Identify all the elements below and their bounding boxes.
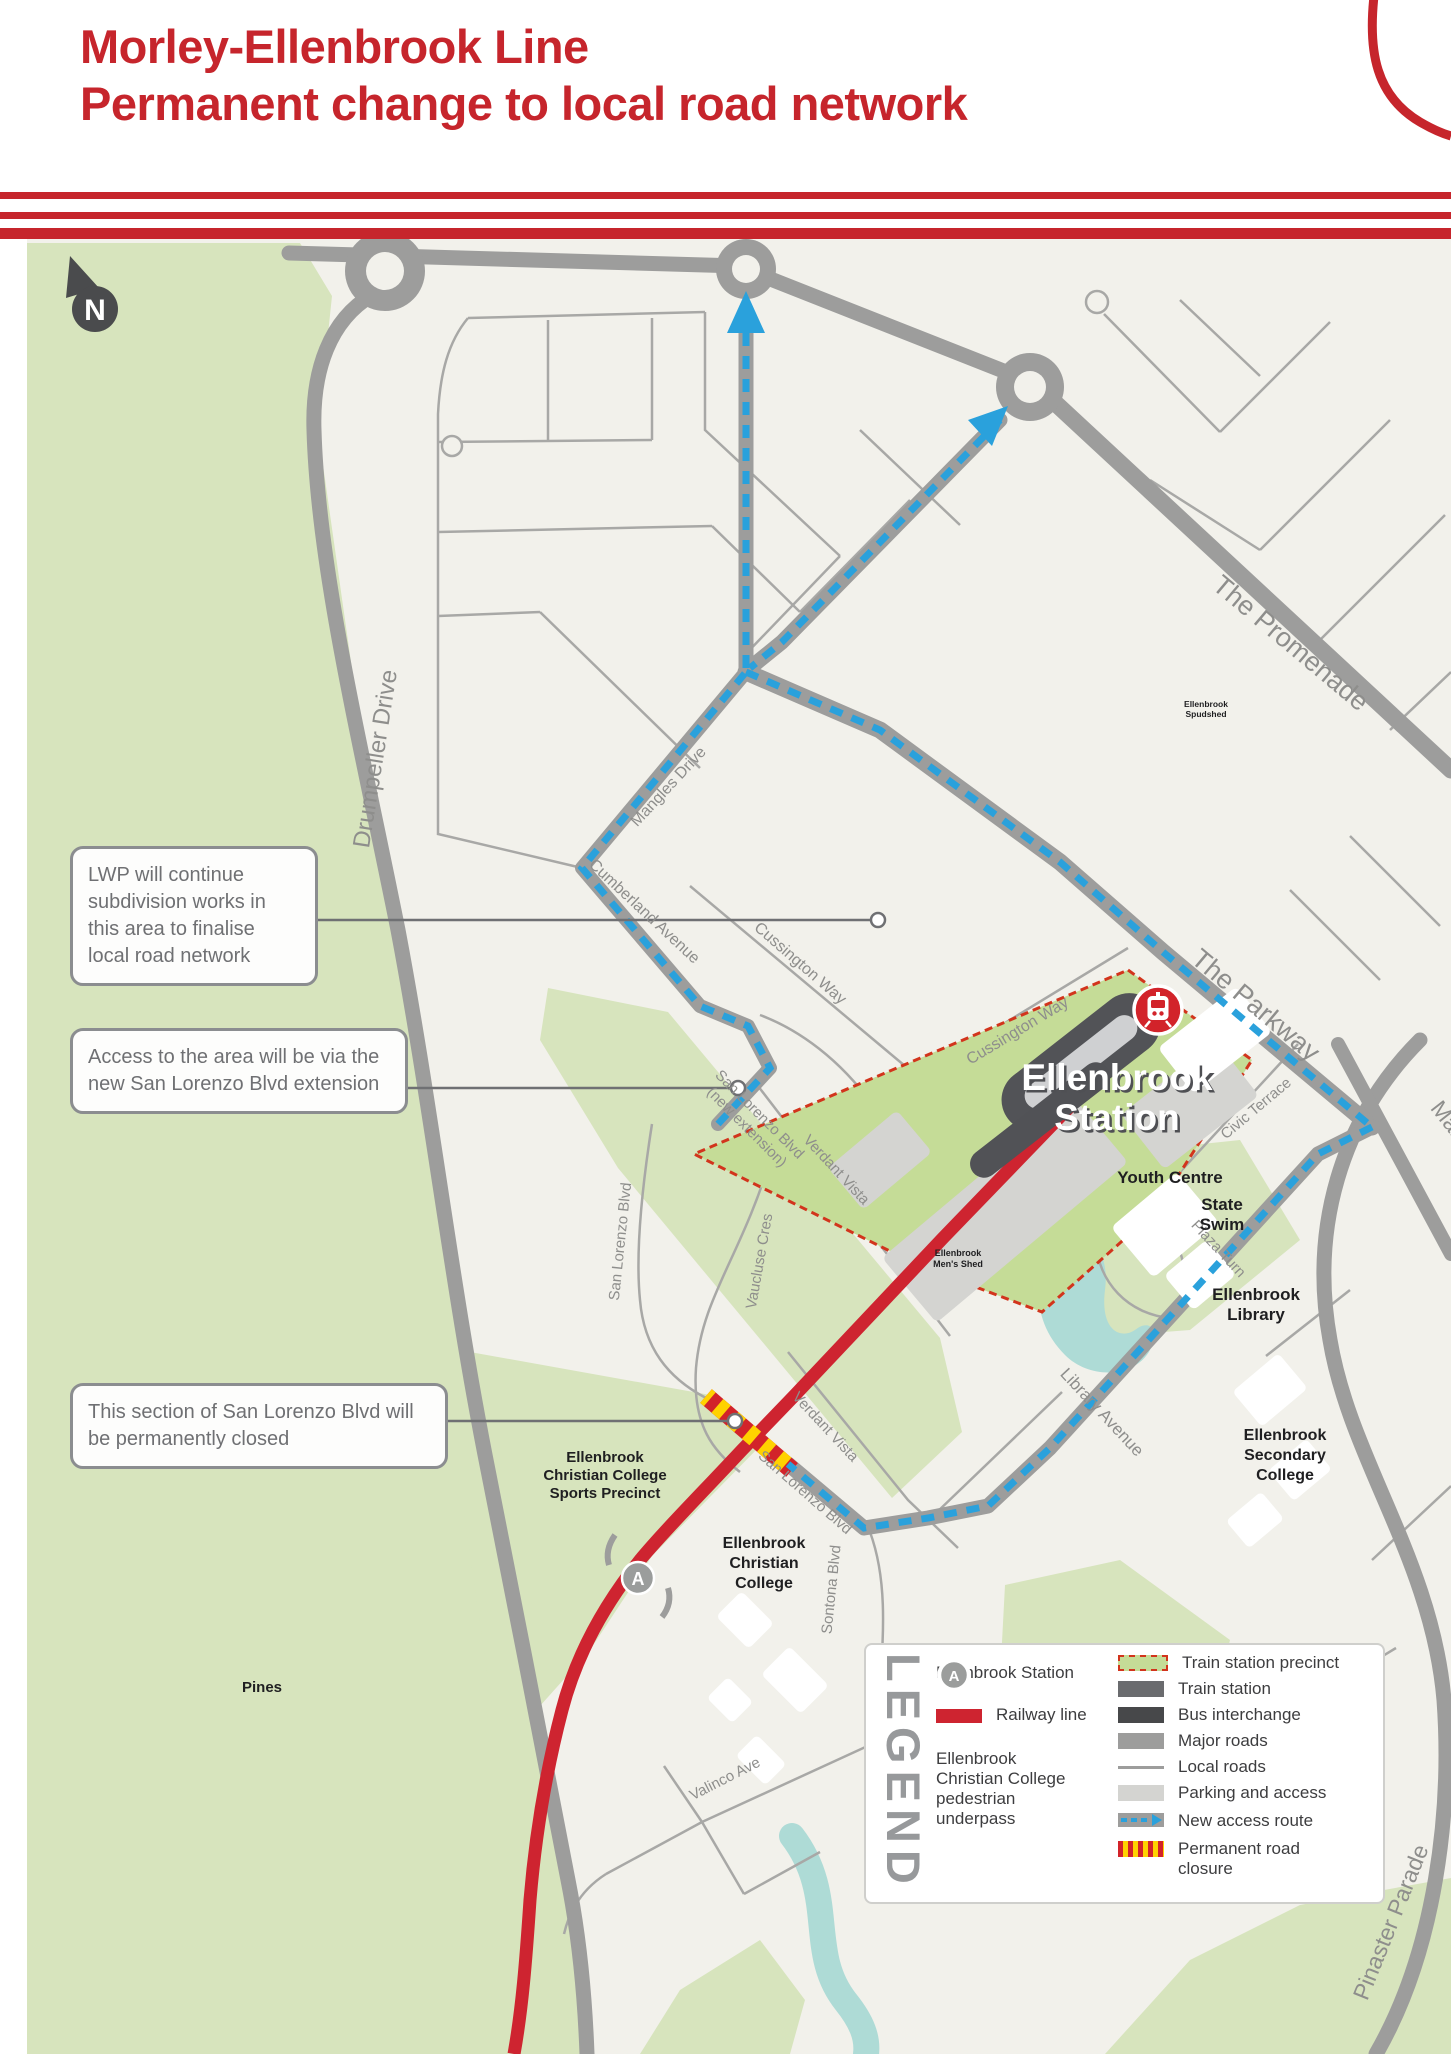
- legend-parking-label: Parking and access: [1178, 1783, 1326, 1803]
- callout-lwp: LWP will continue subdivision works in t…: [70, 846, 318, 986]
- station-name-line1: Ellenbrook: [1021, 1057, 1213, 1098]
- legend-precinct-swatch: [1118, 1655, 1168, 1671]
- legend-major-roads-swatch: [1118, 1733, 1164, 1749]
- page-title: Morley-Ellenbrook Line Permanent change …: [80, 18, 967, 132]
- header-rules: [0, 192, 1451, 239]
- legend-closure-swatch: [1118, 1841, 1164, 1857]
- legend-railway-swatch: [936, 1709, 982, 1723]
- place-pines: Pines: [242, 1679, 282, 1696]
- place-spudshed-1: Ellenbrook: [1184, 699, 1228, 709]
- place-secondary-3: College: [1256, 1467, 1314, 1484]
- legend-precinct-label: Train station precinct: [1182, 1653, 1339, 1673]
- legend-local-roads-label: Local roads: [1178, 1757, 1266, 1777]
- legend-title: LEGEND: [876, 1653, 931, 1891]
- place-christian-2: Christian: [729, 1555, 798, 1572]
- legend-train-station-label: Train station: [1178, 1679, 1271, 1699]
- place-mens-shed-1: Ellenbrook: [935, 1248, 983, 1258]
- header-swoosh: [1372, 0, 1451, 136]
- legend-access-route-swatch: [1118, 1813, 1164, 1827]
- legend-major-roads-label: Major roads: [1178, 1731, 1268, 1751]
- legend-bus-swatch: [1118, 1707, 1164, 1723]
- place-secondary-2: Secondary: [1244, 1447, 1326, 1464]
- legend-railway-label: Railway line: [996, 1705, 1087, 1725]
- callout-access: Access to the area will be via the new S…: [70, 1028, 408, 1114]
- legend-column-1: Ellenbrook Station Railway line A Ellenb…: [936, 1657, 1114, 1835]
- place-sports-3: Sports Precinct: [550, 1485, 661, 1502]
- legend-underpass-icon: A: [936, 1657, 972, 1693]
- ellenbrook-station-icon: [1134, 986, 1182, 1034]
- legend-panel: LEGEND Ellenbrook Station Railway line: [864, 1643, 1385, 1904]
- legend-access-route-label: New access route: [1178, 1811, 1313, 1831]
- legend-underpass-label: Ellenbrook Christian College pedestrian …: [936, 1749, 1065, 1829]
- callout-closure: This section of San Lorenzo Blvd will be…: [70, 1383, 448, 1469]
- legend-train-station-swatch: [1118, 1681, 1164, 1697]
- page-title-line1: Morley-Ellenbrook Line: [80, 18, 967, 75]
- legend-parking-swatch: [1118, 1785, 1164, 1801]
- place-library-2: Library: [1227, 1305, 1285, 1324]
- station-name-line2: Station: [1054, 1097, 1179, 1138]
- legend-column-2: Train station precinct Train station Bus…: [1118, 1653, 1376, 1885]
- legend-local-roads-swatch: [1118, 1766, 1164, 1769]
- legend-closure-label: Permanent road closure: [1178, 1839, 1300, 1879]
- place-state-swim-1: State: [1201, 1195, 1243, 1214]
- svg-text:A: A: [949, 1668, 960, 1685]
- place-spudshed-2: Spudshed: [1185, 709, 1226, 719]
- place-mens-shed-2: Men's Shed: [933, 1259, 983, 1269]
- underpass-letter: A: [632, 1569, 645, 1589]
- page-title-line2: Permanent change to local road network: [80, 75, 967, 132]
- place-sports-1: Ellenbrook: [566, 1449, 644, 1466]
- place-state-swim-2: Swim: [1200, 1215, 1244, 1234]
- north-letter: N: [84, 294, 106, 327]
- place-secondary-1: Ellenbrook: [1244, 1427, 1327, 1444]
- place-christian-1: Ellenbrook: [723, 1535, 806, 1552]
- legend-bus-label: Bus interchange: [1178, 1705, 1301, 1725]
- place-youth-centre: Youth Centre: [1117, 1168, 1222, 1187]
- poster-page: A Drumpeller Drive The Promenade The Par…: [0, 0, 1451, 2054]
- place-christian-3: College: [735, 1575, 793, 1592]
- place-library-1: Ellenbrook: [1212, 1285, 1300, 1304]
- place-sports-2: Christian College: [543, 1467, 666, 1484]
